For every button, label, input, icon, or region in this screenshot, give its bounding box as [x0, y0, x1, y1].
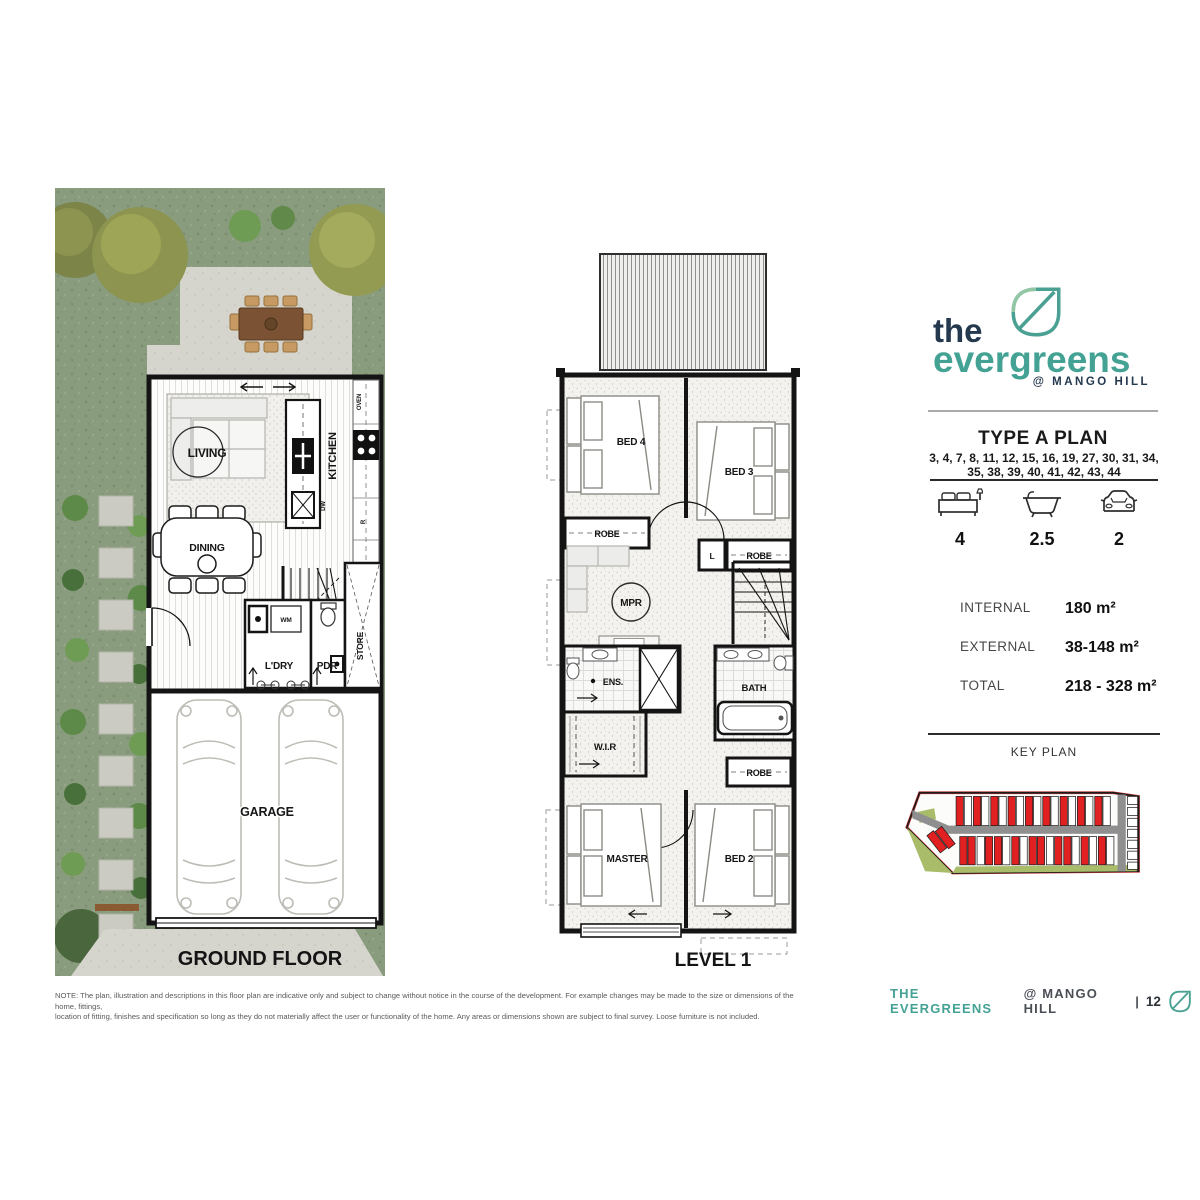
area-value: 38-148 m² [1065, 639, 1139, 657]
cars-count: 2 [1079, 529, 1159, 550]
footer-brand: THE EVERGREENS [890, 986, 1017, 1016]
ens-label: ENS. [603, 677, 623, 687]
ground-floor-caption: GROUND FLOOR [150, 948, 370, 971]
stat-beds: 4 [920, 488, 1000, 550]
plan-lots-line2: 35, 38, 39, 40, 41, 42, 43, 44 [913, 465, 1175, 479]
store-label: STORE [355, 631, 365, 660]
laundry-room: WM L'DRY [245, 600, 311, 688]
powder-room: PDR [311, 600, 345, 688]
footer-separator: | [1135, 994, 1139, 1009]
bed-icon [937, 488, 983, 518]
level1-plan: BED 4 BED 3 ROBE L ROBE [543, 250, 813, 962]
divider [928, 410, 1158, 412]
mpr-label: MPR [620, 598, 643, 609]
key-plan-map [905, 780, 1165, 894]
linen-label: L [710, 551, 715, 561]
robe-bed2-label: ROBE [746, 768, 771, 778]
page-footer: THE EVERGREENS @ MANGO HILL | 12 [890, 985, 1192, 1017]
master-label: MASTER [606, 854, 648, 865]
stat-baths: 2.5 [1002, 488, 1082, 550]
garage-door [156, 918, 376, 928]
store-room: STORE [345, 563, 381, 688]
dining-label: DINING [189, 542, 225, 554]
disclaimer-line1: NOTE: The plan, illustration and descrip… [55, 991, 815, 1012]
footer-tagline: @ MANGO HILL [1024, 986, 1129, 1016]
area-label: EXTERNAL [960, 639, 1035, 654]
bed3-label: BED 3 [725, 467, 754, 478]
ldry-label: L'DRY [265, 661, 294, 672]
garage-label: GARAGE [240, 805, 294, 819]
kitchen-bench: OVEN R [353, 380, 379, 566]
kitchen-island: DW [286, 400, 327, 528]
oven-label: OVEN [357, 394, 363, 410]
wm-label: WM [280, 617, 291, 624]
bath-label: BATH [742, 683, 767, 694]
logo-tagline: @ MANGO HILL [1033, 376, 1150, 388]
disclaimer-line2: location of fitting, finishes and specif… [55, 1012, 815, 1023]
bed4-label: BED 4 [617, 437, 646, 448]
stat-cars: 2 [1079, 488, 1159, 550]
bed2-label: BED 2 [725, 854, 754, 865]
plan-lots-line1: 3, 4, 7, 8, 11, 12, 15, 16, 19, 27, 30, … [913, 451, 1175, 465]
beds-count: 4 [920, 529, 1000, 550]
wir-label: W.I.R [594, 742, 617, 753]
area-label: TOTAL [960, 678, 1005, 693]
area-value: 180 m² [1065, 600, 1116, 618]
divider [930, 479, 1158, 481]
baths-count: 2.5 [1002, 529, 1082, 550]
robe-bed3-label: ROBE [746, 551, 771, 561]
car-icon [1099, 488, 1139, 518]
pdr-label: PDR [317, 661, 338, 672]
ground-floor-plan: LIVING DINING [55, 188, 385, 976]
leaf-logo-icon [1008, 283, 1064, 341]
kitchen-label: KITCHEN [327, 432, 339, 480]
key-plan-title: KEY PLAN [928, 745, 1160, 759]
ground-floor-building: LIVING DINING [146, 377, 381, 928]
plan-type-title: TYPE A PLAN [928, 428, 1158, 450]
level1-caption: LEVEL 1 [628, 950, 798, 972]
roof-deck [600, 254, 766, 370]
area-label: INTERNAL [960, 600, 1031, 615]
logo-name: evergreens [933, 341, 1130, 378]
disclaimer-note: NOTE: The plan, illustration and descrip… [55, 991, 815, 1023]
area-value: 218 - 328 m² [1065, 678, 1157, 696]
info-panel: the evergreens @ MANGO HILL TYPE A PLAN … [905, 278, 1190, 1023]
bath-icon [1020, 488, 1064, 518]
brochure-page: LIVING DINING [0, 0, 1200, 1200]
living-label: LIVING [188, 446, 227, 460]
robe-bed4-label: ROBE [594, 529, 619, 539]
divider [928, 733, 1160, 735]
footer-page-number: 12 [1146, 994, 1161, 1009]
footer-leaf-icon [1168, 988, 1192, 1015]
dw-label: DW [321, 501, 327, 511]
